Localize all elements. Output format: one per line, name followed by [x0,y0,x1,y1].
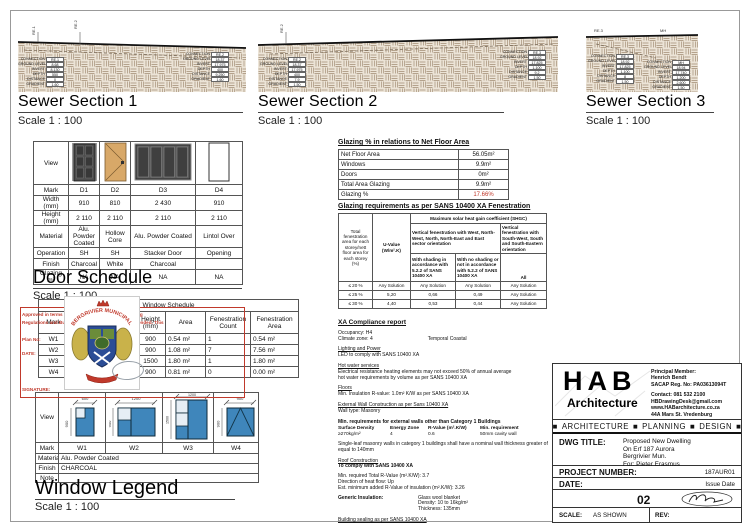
door-d4-drawing [207,142,231,182]
square-bullet-icon: ■ [633,422,638,431]
pipe-label: RE.2 [279,24,284,33]
glazing-row-value: 56.05m² [459,150,509,160]
square-bullet-icon: ■ [553,422,558,431]
row-label: Width (mm) [34,196,69,211]
principal-info: Principal Member: Henrich Bendt SACAP Re… [651,369,726,388]
date-value: Issue Date [705,481,735,488]
connection-table: CONNECTIONRE.3GROUND LEVEL18.92INVERT17.… [500,50,546,80]
title-rule [586,112,714,113]
xa-line: Climate zone: 4Temporal Coastal [338,337,553,343]
window-legend-title: Window Legend [35,477,178,500]
window-w1-drawing: 600 900 [61,394,105,440]
project-number-value: 187AUR01 [705,469,735,476]
date-row: DATE: Issue Date [553,478,741,490]
window-mark: W1 [59,443,106,454]
cell: 4,40 [373,300,411,309]
glazing-row-label: Windows [339,160,459,170]
door-finish [196,259,243,270]
svg-text:900: 900 [64,419,69,426]
door-operation: SH [69,248,100,259]
door-material: Alu. Powder Coated [131,226,196,248]
connection-table-row: GRADIENT1.50 [588,79,634,84]
door-height: 2 110 [131,211,196,226]
window-w3-drawing: 1200 1500 [165,393,211,440]
xa-line: hot water requirements by volume as per … [338,376,553,382]
dwg-title-line: Proposed New Dwelling [623,438,691,446]
row-label: Material [34,226,69,248]
door-operation: SH [100,248,131,259]
scale-value: AS SHOWN [593,512,627,519]
cell: 5,20 [373,291,411,300]
window-view-w3: 1200 1500 [163,393,214,443]
xa-note: Single-leaf masonry walls in category 1 … [338,442,553,454]
section-scale: Scale 1 : 100 [586,115,650,127]
glazing-req-title: Glazing requirements as per SANS 10400 X… [338,203,530,210]
scale-rev-row: SCALE: AS SHOWN REV: [553,508,741,522]
principal-reg: SACAP Reg. No: PA03613094T [651,382,726,388]
door-width: 810 [100,196,131,211]
scale-label: SCALE: [559,512,582,519]
door-glazing: NA [196,270,243,285]
glazing-row-value: 9.9m² [459,160,509,170]
row-label: Operation [34,248,69,259]
svg-text:1500: 1500 [166,416,170,424]
sheet-number: 02 [637,493,650,507]
xa-line: Est. minimum added R-Value of insulation… [338,486,553,492]
cell: 0,66 [411,291,456,300]
connection-table: CONNECTIONRE.2GROUND LEVEL18.37INVERT17.… [183,52,229,82]
connection-table: CONNECTIONRE.2GROUND LEVEL18.37INVERT17.… [260,57,306,87]
signature [679,491,735,507]
row-label: View [36,393,59,443]
title-rule [18,112,243,113]
door-height: 2 110 [196,211,243,226]
xa-bold-line: To comply with SANS 10400 XA [338,464,553,470]
connection-table: CONNECTIONRE.3GROUND LEVEL18.92INVERT17.… [588,54,634,84]
service-label: DESIGN [699,422,732,431]
pipe-label: RE.3 [594,28,603,33]
door-width: 910 [196,196,243,211]
glazing-pct-table: Net Floor Area 56.05m² Windows 9.9m² Doo… [338,149,509,200]
cell: Any Solution [456,282,501,291]
col-header: Total fenestration area for each storey/… [339,214,373,282]
cell: 0.6 [428,432,480,438]
connection-table-row: GRADIENT1.50 [500,75,546,80]
connection-table: CONNECTIONRE.1GROUND LEVEL8.68INVERT8.13… [18,57,64,87]
glazing-row-label: Total Area Glazing [339,180,459,190]
col-header: Maximum solar heat gain coefficient (SHG… [411,214,547,224]
window-material: Alu. Powder Coated [59,454,259,464]
pipe-label: MH [660,28,666,33]
sewer-section-1: RE.1 RE.2 CONNECTIONRE.1GROUND LEVEL8.68… [18,12,246,142]
connection-table-row: GRADIENT1.50 [644,85,690,90]
door-mark: D3 [131,185,196,196]
xa-wall-table: Surface Density Energy Zone R-Value (m².… [338,426,546,438]
cell: Any Solution [501,291,547,300]
door-d2-drawing [104,142,127,182]
service-label: ARCHITECTURE [562,422,629,431]
cell: 7.56 m² [251,345,299,356]
title-rule [35,499,235,500]
door-height: 2 110 [69,211,100,226]
door-mark: D4 [196,185,243,196]
svg-text:900: 900 [109,419,112,426]
pipe-label: RE.2 [73,20,78,29]
door-d1-drawing [71,142,98,182]
cell: ≤ 20 % [339,282,373,291]
window-view-w1: 600 900 [59,393,106,443]
sewer-section-3: RE.3 MH CONNECTIONRE.3GROUND LEVEL18.92I… [586,12,716,142]
glazing-row-label: Glazing % [339,190,459,200]
cell: 0.54 m² [251,334,299,345]
contact-email: HBDrawingDesk@gmail.com [651,399,722,406]
col-header: All [501,254,547,282]
door-schedule-title: Door Schedule [33,267,152,288]
hab-logo-subtitle: Architecture [567,396,638,410]
dwg-title-row: DWG TITLE: Proposed New Dwelling On Erf … [553,436,741,466]
cell: Any Solution [501,300,547,309]
sewer-section-2: RE.2 CONNECTIONRE.2GROUND LEVEL18.37INVE… [258,12,558,142]
door-mark: D1 [69,185,100,196]
pipe-label: RE.1 [31,26,36,35]
xa-bold-line: Min. requirements for external walls oth… [338,420,553,426]
door-view-d4 [196,142,243,185]
section-title: Sewer Section 3 [586,93,706,111]
xa-line: Wall type: Masonry [338,409,553,415]
glazing-row-label: Net Floor Area [339,150,459,160]
dwg-title-label: DWG TITLE: [559,438,606,447]
cell: Any Solution [501,282,547,291]
col-header: Vertical fenestration with West, North- … [411,224,501,254]
title-rule [33,288,242,289]
contact-address: 44A Mars St. Vredenburg [651,412,722,419]
connection-table-row: GRADIENT1.60 [183,77,229,82]
col-header: With shading in accordance with 5.2.2 of… [411,254,456,282]
cell: 1.80 m² [251,356,299,367]
square-bullet-icon: ■ [736,422,741,431]
cell: 50mm cavity wall [480,432,546,438]
door-width: 2 430 [131,196,196,211]
window-finish: CHARCOAL [59,464,259,474]
svg-text:900: 900 [216,419,221,426]
cell: Any Solution [373,282,411,291]
section-title: Sewer Section 2 [258,93,378,111]
rev-label: REV: [655,512,669,519]
door-d3-drawing [134,143,192,181]
connection-table-row: GRADIENT1.60 [18,82,64,87]
dwg-title-line: On Erf 187 Aurora [623,446,691,454]
xa-line: LED to comply with SANS 10400 XA [338,353,553,359]
col-header: Vertical fenestration with South-West, S… [501,224,547,254]
door-material: Lintol Over [196,226,243,248]
door-operation: Opening [196,248,243,259]
dwg-title-line: Bergrivier Mun. [623,453,691,461]
glazing-percentage-value: 17.66% [459,190,509,200]
door-material: Hollow Core [100,226,131,248]
project-number-label: PROJECT NUMBER: [559,468,637,477]
section-scale: Scale 1 : 100 [18,115,82,127]
connection-table: CONNECTIONMHGROUND LEVEL18.94INVERT17.74… [644,60,690,90]
project-number-row: PROJECT NUMBER: 187AUR01 [553,466,741,478]
divider [649,508,650,522]
glazing-pct-title: Glazing % in relations to Net Floor Area [338,139,469,146]
door-mark: D2 [100,185,131,196]
xa-compliance-report: XA Compliance report Occupancy: H4 Clima… [338,320,553,524]
glazing-req-table: Total fenestration area for each storey/… [338,213,547,309]
glazing-row-value: 0m² [459,170,509,180]
col-header: With no shading or not in accordance wit… [456,254,501,282]
window-mark: W4 [214,443,259,454]
cell: 0,53 [411,300,456,309]
contact-info: Contact: 081 532 2100 HBDrawingDesk@gmai… [651,392,722,418]
contact-phone: Contact: 081 532 2100 [651,392,722,399]
window-view-w4: 900 900 [214,393,259,443]
window-legend-scale: Scale 1 : 100 [35,501,99,513]
row-label: Height (mm) [34,211,69,226]
square-bullet-icon: ■ [690,422,695,431]
cell: 0,49 [456,291,501,300]
window-w2-drawing: 1200 900 [109,394,159,440]
window-mark: W3 [163,443,214,454]
cell: 4 [390,432,428,438]
drawing-sheet: RE.1 RE.2 CONNECTIONRE.1GROUND LEVEL8.68… [0,0,750,529]
glazing-row-label: Doors [339,170,459,180]
row-label: View [34,142,69,185]
glazing-row-value: 9.9m² [459,180,509,190]
cell: ≤ 25 % [339,291,373,300]
cell: 0.00 m² [251,367,299,378]
xa-line: Min. Insulation R-value: 1.0m² K/W as pe… [338,392,553,398]
row-label: Material [36,454,59,464]
door-height: 2 110 [100,211,131,226]
dwg-title-lines: Proposed New Dwelling On Erf 187 Aurora … [623,438,691,468]
title-block: HAB Architecture Principal Member: Henri… [552,363,742,523]
xa-line: Thickness: 135mm [418,507,468,513]
date-label: DATE: [559,480,583,489]
xa-heading: Building sealing as per SANS 10400 XA [338,518,553,524]
door-width: 910 [69,196,100,211]
services-row: ■ ARCHITECTURE ■ PLANNING ■ DESIGN ■ [553,419,741,434]
title-rule [258,112,504,113]
cell: 0,44 [456,300,501,309]
window-w4-drawing: 900 900 [216,394,258,440]
contact-website: www.HABarchitecture.co.za [651,405,722,412]
door-operation: Stacker Door [131,248,196,259]
door-view-d1 [69,142,100,185]
xa-bold-line: Generic Insulation: [338,496,418,513]
window-view-w2: 1200 900 [106,393,163,443]
section-title: Sewer Section 1 [18,93,138,111]
row-label: Finish [36,464,59,474]
door-material: Alu. Powder Coated [69,226,100,248]
col-header: U-Value (W/m².K) [373,214,411,282]
door-view-d3 [131,142,196,185]
window-legend-table: View 600 900 1200 [35,392,259,483]
xa-title: XA Compliance report [338,320,553,326]
xa-generic-insulation: Generic Insulation: Glass wool blanket D… [338,496,553,513]
door-view-d2 [100,142,131,185]
row-label: Mark [36,443,59,454]
cell: Any Solution [411,282,456,291]
cell: ≥270kg/m² [338,432,390,438]
approval-text: Plan No: [22,337,41,342]
col-header: Fenestration Area [251,312,299,334]
cell: ≤ 30 % [339,300,373,309]
door-schedule-table: View [33,141,243,285]
hab-logo: HAB [563,366,637,397]
window-mark: W2 [106,443,163,454]
service-label: PLANNING [642,422,686,431]
connection-table-row: GRADIENT1.50 [260,82,306,87]
sheet-number-row: 02 [553,490,741,508]
approval-text: DATE: [22,351,36,356]
signature-label: SIGNATURE: [22,387,50,392]
row-label: Mark [34,185,69,196]
section-scale: Scale 1 : 100 [258,115,322,127]
